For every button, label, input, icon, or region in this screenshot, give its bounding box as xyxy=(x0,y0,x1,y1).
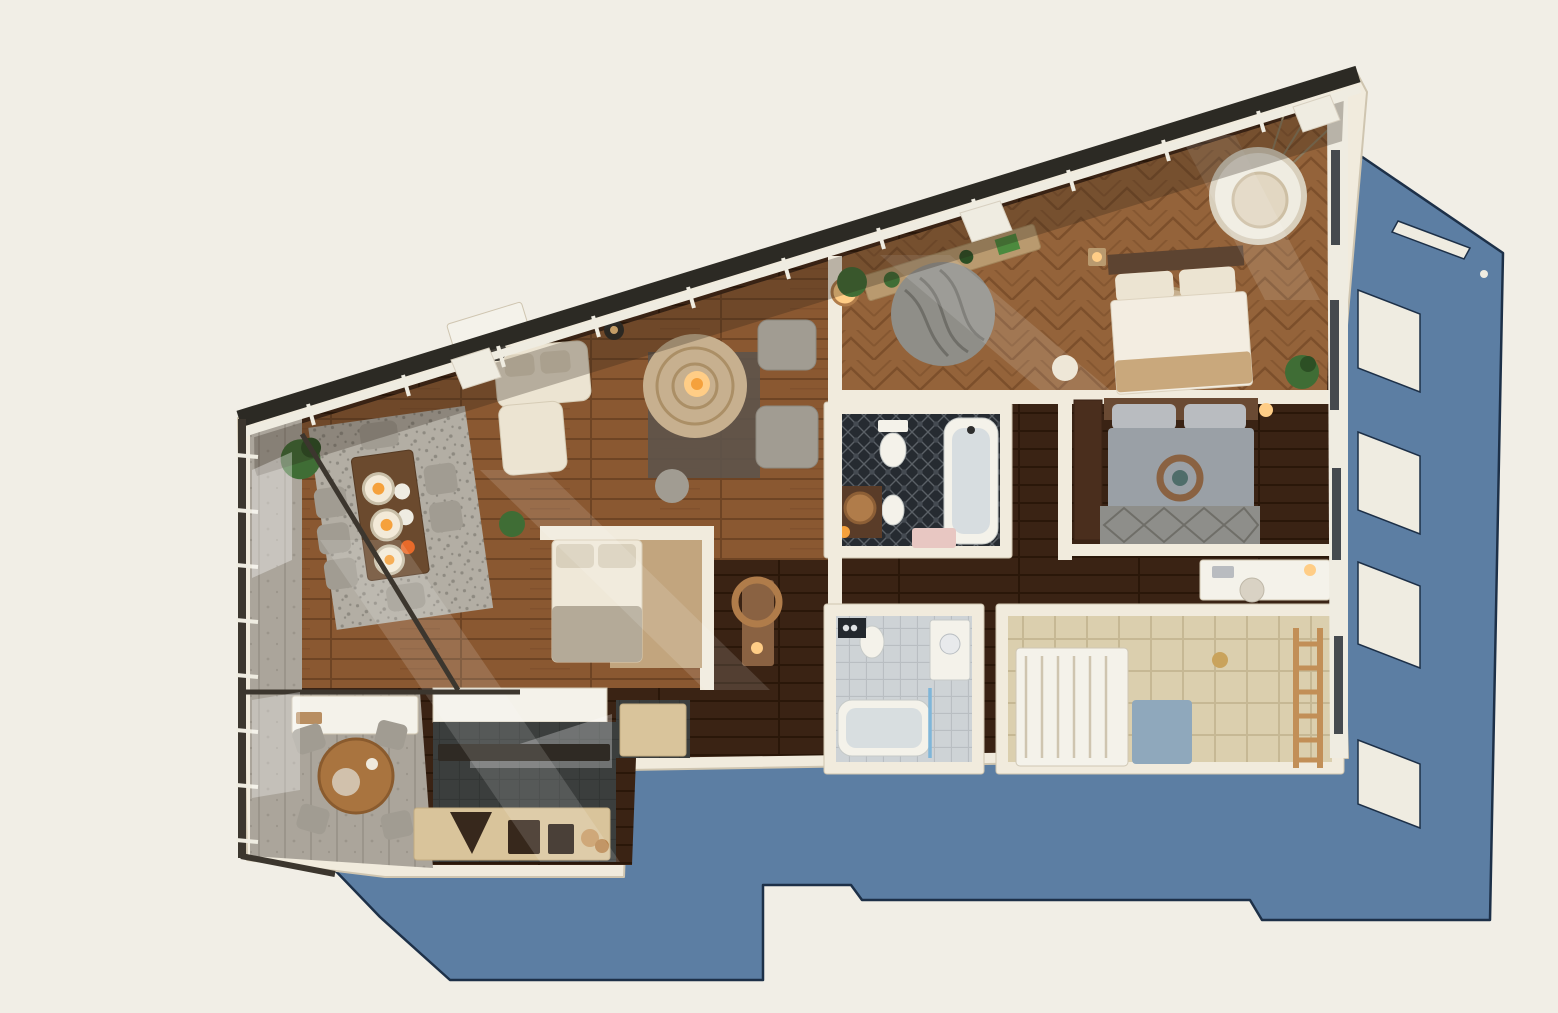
bronze-basin xyxy=(845,493,875,523)
shadow-dot xyxy=(1480,270,1488,278)
terrace-teapot xyxy=(332,768,360,796)
bed2-pillow-1 xyxy=(1112,404,1176,430)
bed2-pillow-2 xyxy=(1184,404,1246,430)
study-books xyxy=(1212,566,1234,578)
main-bathroom-group xyxy=(824,402,1012,558)
floorplan-render xyxy=(0,0,1558,1013)
right-window-1 xyxy=(1331,150,1340,245)
armchair-2 xyxy=(756,406,818,468)
right-facade xyxy=(1327,90,1348,758)
right-window-3 xyxy=(1332,468,1341,560)
study-nook-group xyxy=(1200,560,1330,602)
ottoman xyxy=(655,469,689,503)
bed2-diamond-rug xyxy=(1100,506,1260,544)
second-bathtub-water xyxy=(846,708,922,748)
main-bathtub-water xyxy=(952,428,990,534)
sign-ring-1 xyxy=(843,625,849,631)
right-window-4 xyxy=(1334,636,1343,734)
blue-bedding xyxy=(1132,700,1192,764)
wardrobe xyxy=(1074,400,1102,540)
hall-candle xyxy=(751,642,763,654)
glass-reflection-2 xyxy=(252,692,300,798)
pink-bath-mat xyxy=(912,528,956,548)
wreath-center xyxy=(1172,470,1188,486)
master-plant-2-leaf xyxy=(1300,356,1316,372)
master-bed xyxy=(1107,245,1252,394)
bunk-bed xyxy=(1016,648,1128,766)
study-lamp xyxy=(1304,564,1316,576)
floor-lamp xyxy=(691,378,703,390)
kids-toy xyxy=(1212,652,1228,668)
floorplan-stage xyxy=(0,0,1558,1013)
study-chair xyxy=(1240,578,1264,602)
bidet xyxy=(882,495,904,525)
second-bathroom-group xyxy=(824,604,984,774)
wall-bedroom2-west xyxy=(1058,404,1072,560)
nightstand-lamp xyxy=(1092,252,1102,262)
bedside-lamp xyxy=(1259,403,1273,417)
tall-cabinet xyxy=(620,704,686,756)
toilet-tank xyxy=(878,420,908,432)
armchair-1 xyxy=(758,320,816,370)
glass-reflection-1 xyxy=(252,452,292,578)
vanity-bowl xyxy=(940,634,960,654)
toilet xyxy=(880,433,906,467)
bath-faucet xyxy=(967,426,975,434)
terrace-cup xyxy=(366,758,378,770)
wall-bedroom2-south xyxy=(1072,544,1336,556)
right-window-2 xyxy=(1330,300,1339,410)
sign-ring-2 xyxy=(851,625,857,631)
kids-room-group xyxy=(996,604,1344,774)
nook-plant xyxy=(499,511,525,537)
